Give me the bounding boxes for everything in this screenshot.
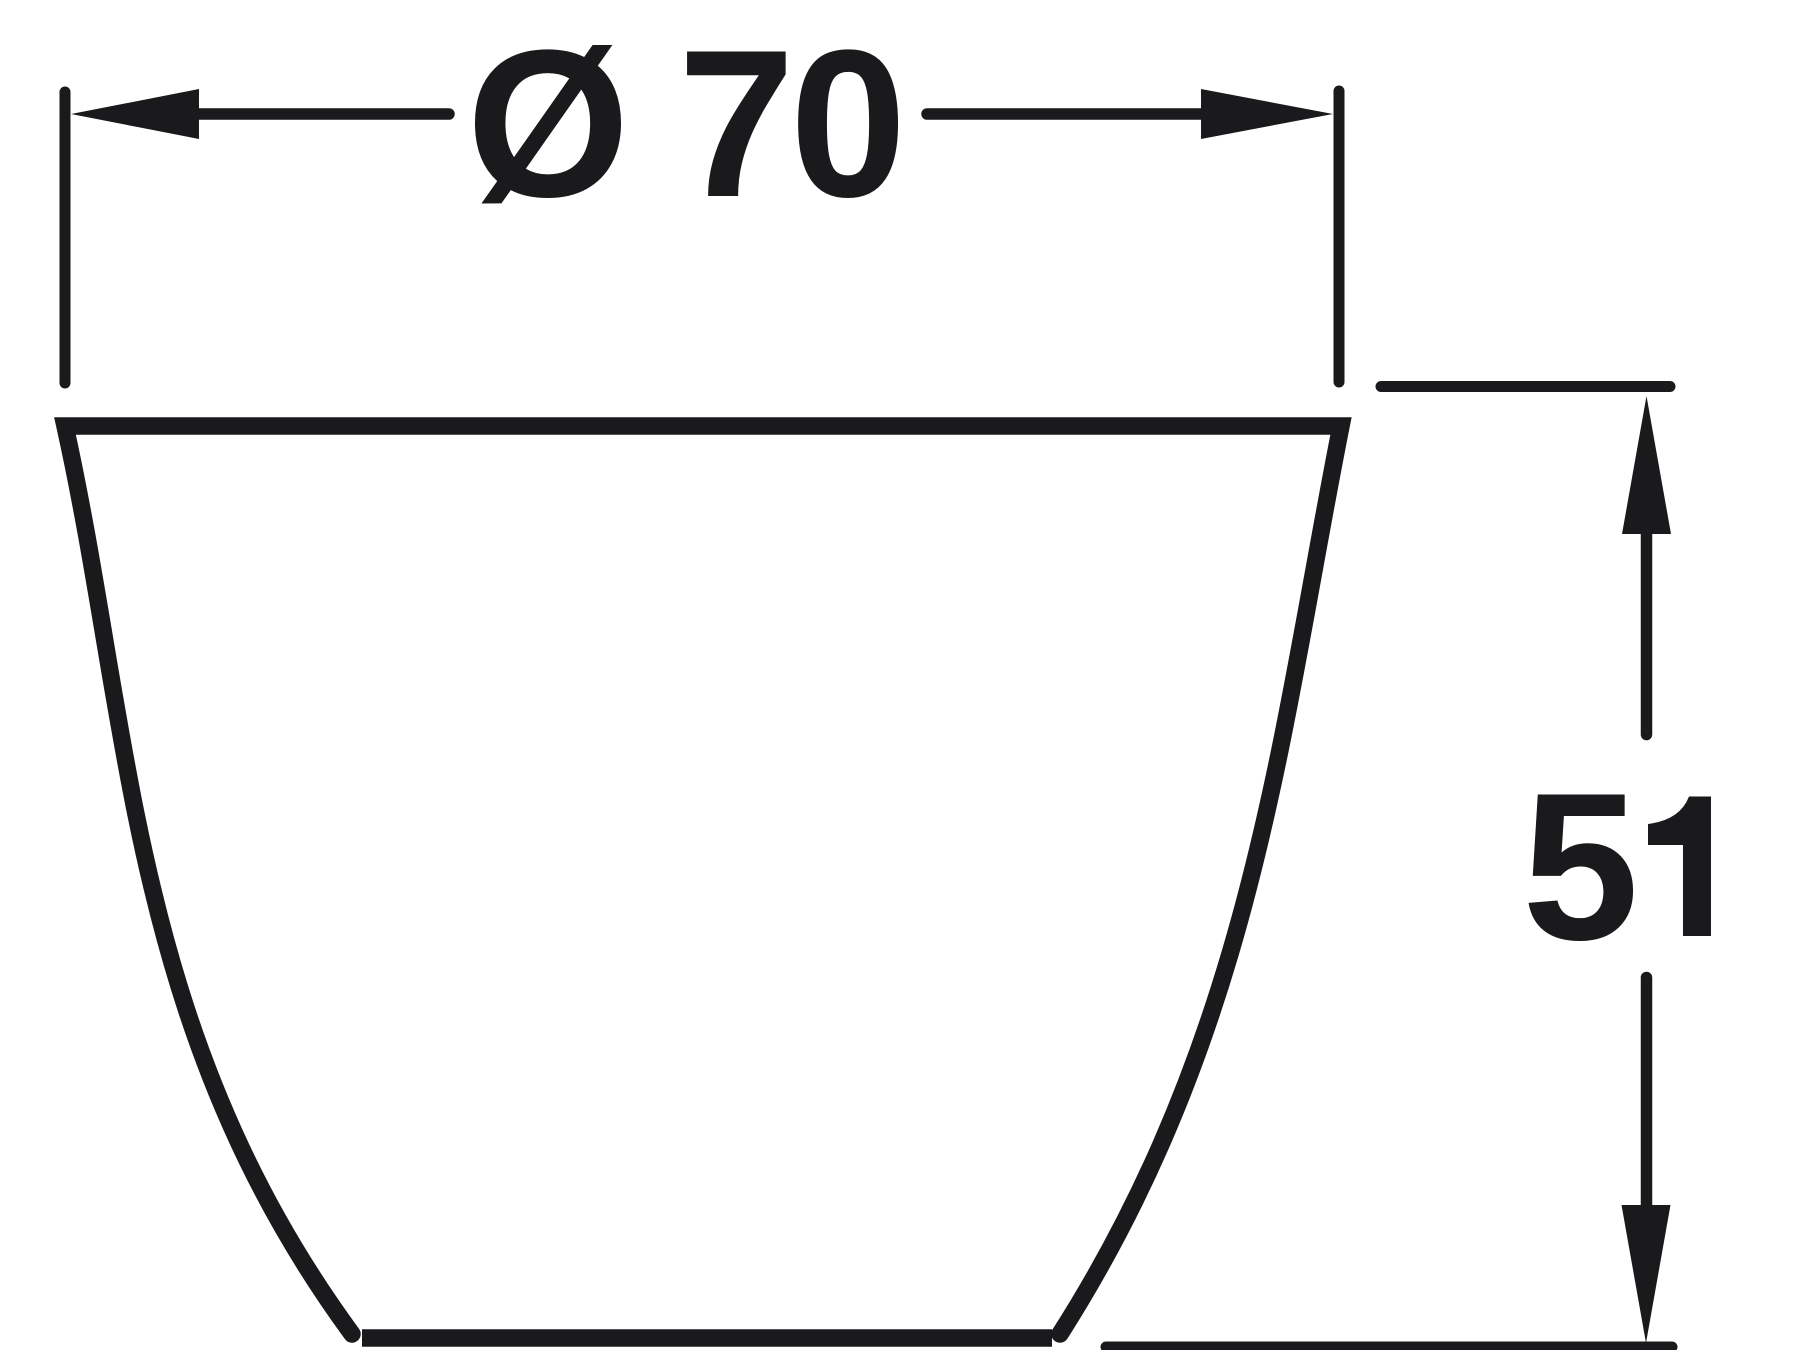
svg-text:5: 5 <box>1522 749 1639 984</box>
svg-text:Ø 70: Ø 70 <box>466 6 901 241</box>
